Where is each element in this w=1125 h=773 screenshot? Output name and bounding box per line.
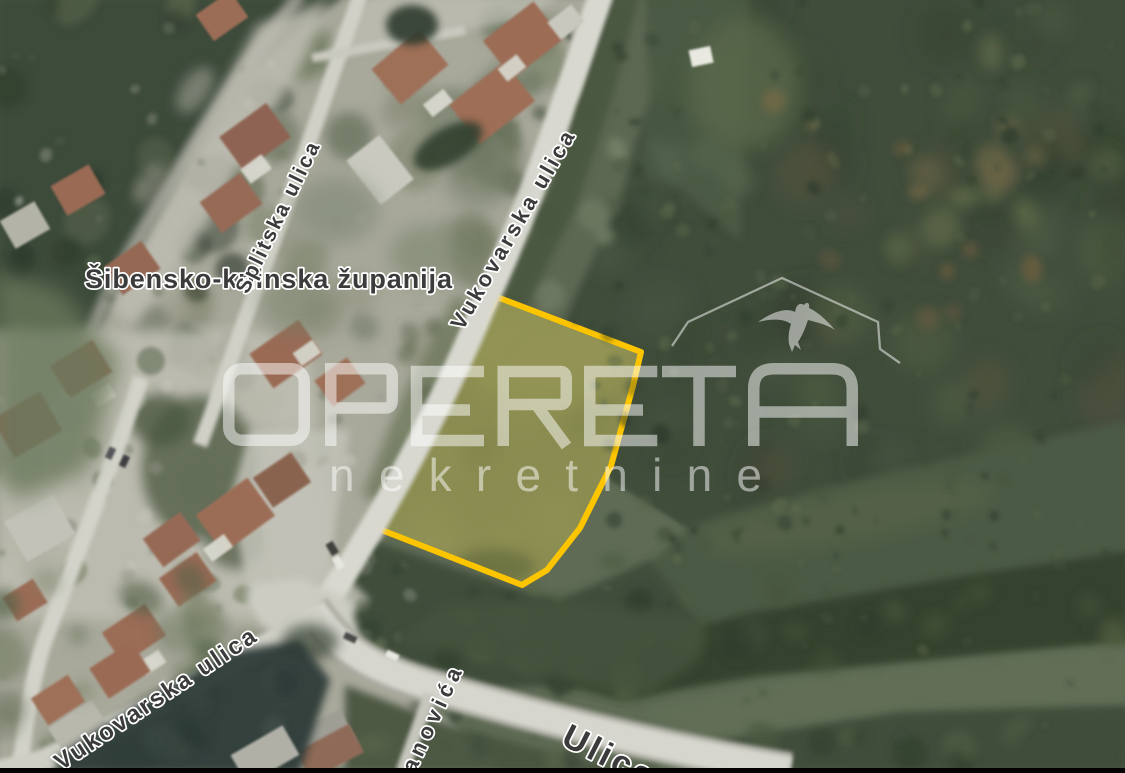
svg-text:Šibensko-kninska županija: Šibensko-kninska županija bbox=[85, 263, 453, 294]
